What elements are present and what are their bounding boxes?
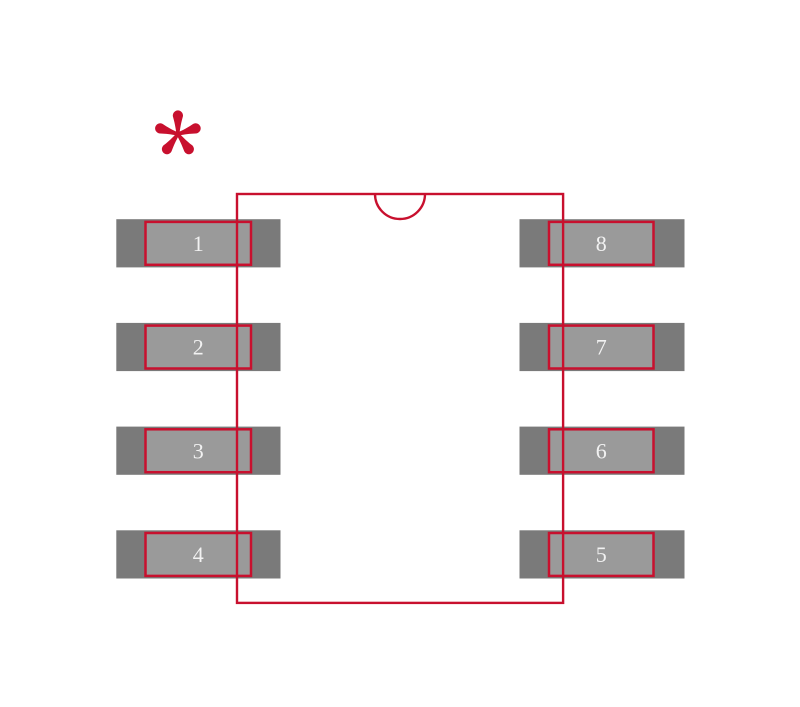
svg-text:2: 2	[193, 335, 204, 360]
svg-text:1: 1	[193, 231, 204, 256]
svg-text:4: 4	[193, 542, 204, 567]
svg-text:8: 8	[596, 231, 607, 256]
svg-text:7: 7	[596, 335, 607, 360]
svg-text:5: 5	[596, 542, 607, 567]
svg-text:6: 6	[596, 438, 607, 463]
svg-text:3: 3	[193, 438, 204, 463]
